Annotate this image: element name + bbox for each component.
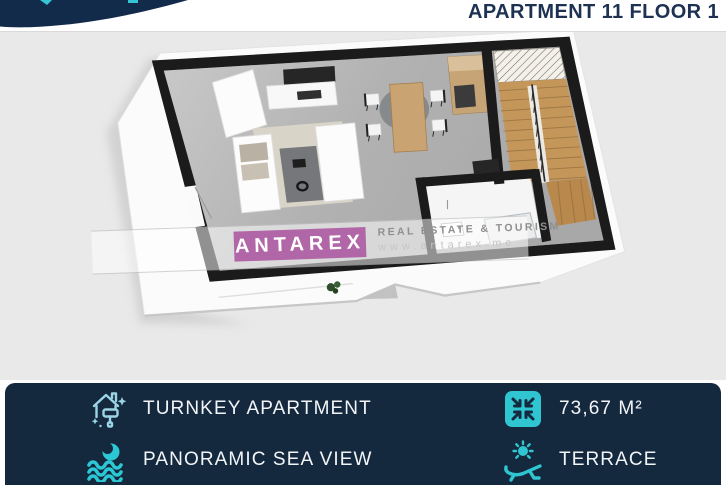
watermark-brand: ANTAREX bbox=[233, 227, 366, 262]
page-title: APARTMENT 11 FLOOR 1 bbox=[468, 1, 719, 24]
real-estate-listing-image: APARTMENT 11 FLOOR 1 bbox=[0, 0, 726, 485]
antarex-logo-swoosh bbox=[0, 0, 200, 30]
feature-label: TERRACE bbox=[559, 449, 658, 471]
floor-plan-area: ANTAREX REAL ESTATE & TOURISM www.antare… bbox=[0, 31, 726, 380]
feature-label: TURNKEY APARTMENT bbox=[143, 398, 372, 420]
feature-sea-view: PANORAMIC SEA VIEW bbox=[5, 438, 495, 482]
area-compress-icon bbox=[501, 387, 545, 431]
kitchen-cabinet bbox=[447, 55, 488, 115]
sea-view-icon bbox=[85, 438, 129, 482]
header-strip: APARTMENT 11 FLOOR 1 bbox=[0, 0, 726, 31]
feature-label: PANORAMIC SEA VIEW bbox=[143, 449, 373, 471]
feature-area: 73,67 M² bbox=[495, 387, 721, 431]
turnkey-house-icon bbox=[85, 387, 129, 431]
feature-label: 73,67 M² bbox=[559, 398, 643, 420]
terrace-lounger-icon bbox=[501, 438, 545, 482]
feature-terrace: TERRACE bbox=[495, 438, 721, 482]
floor-plan-render bbox=[0, 32, 726, 380]
feature-turnkey: TURNKEY APARTMENT bbox=[5, 387, 495, 431]
feature-banner: TURNKEY APARTMENT 73,67 M² bbox=[5, 383, 721, 485]
